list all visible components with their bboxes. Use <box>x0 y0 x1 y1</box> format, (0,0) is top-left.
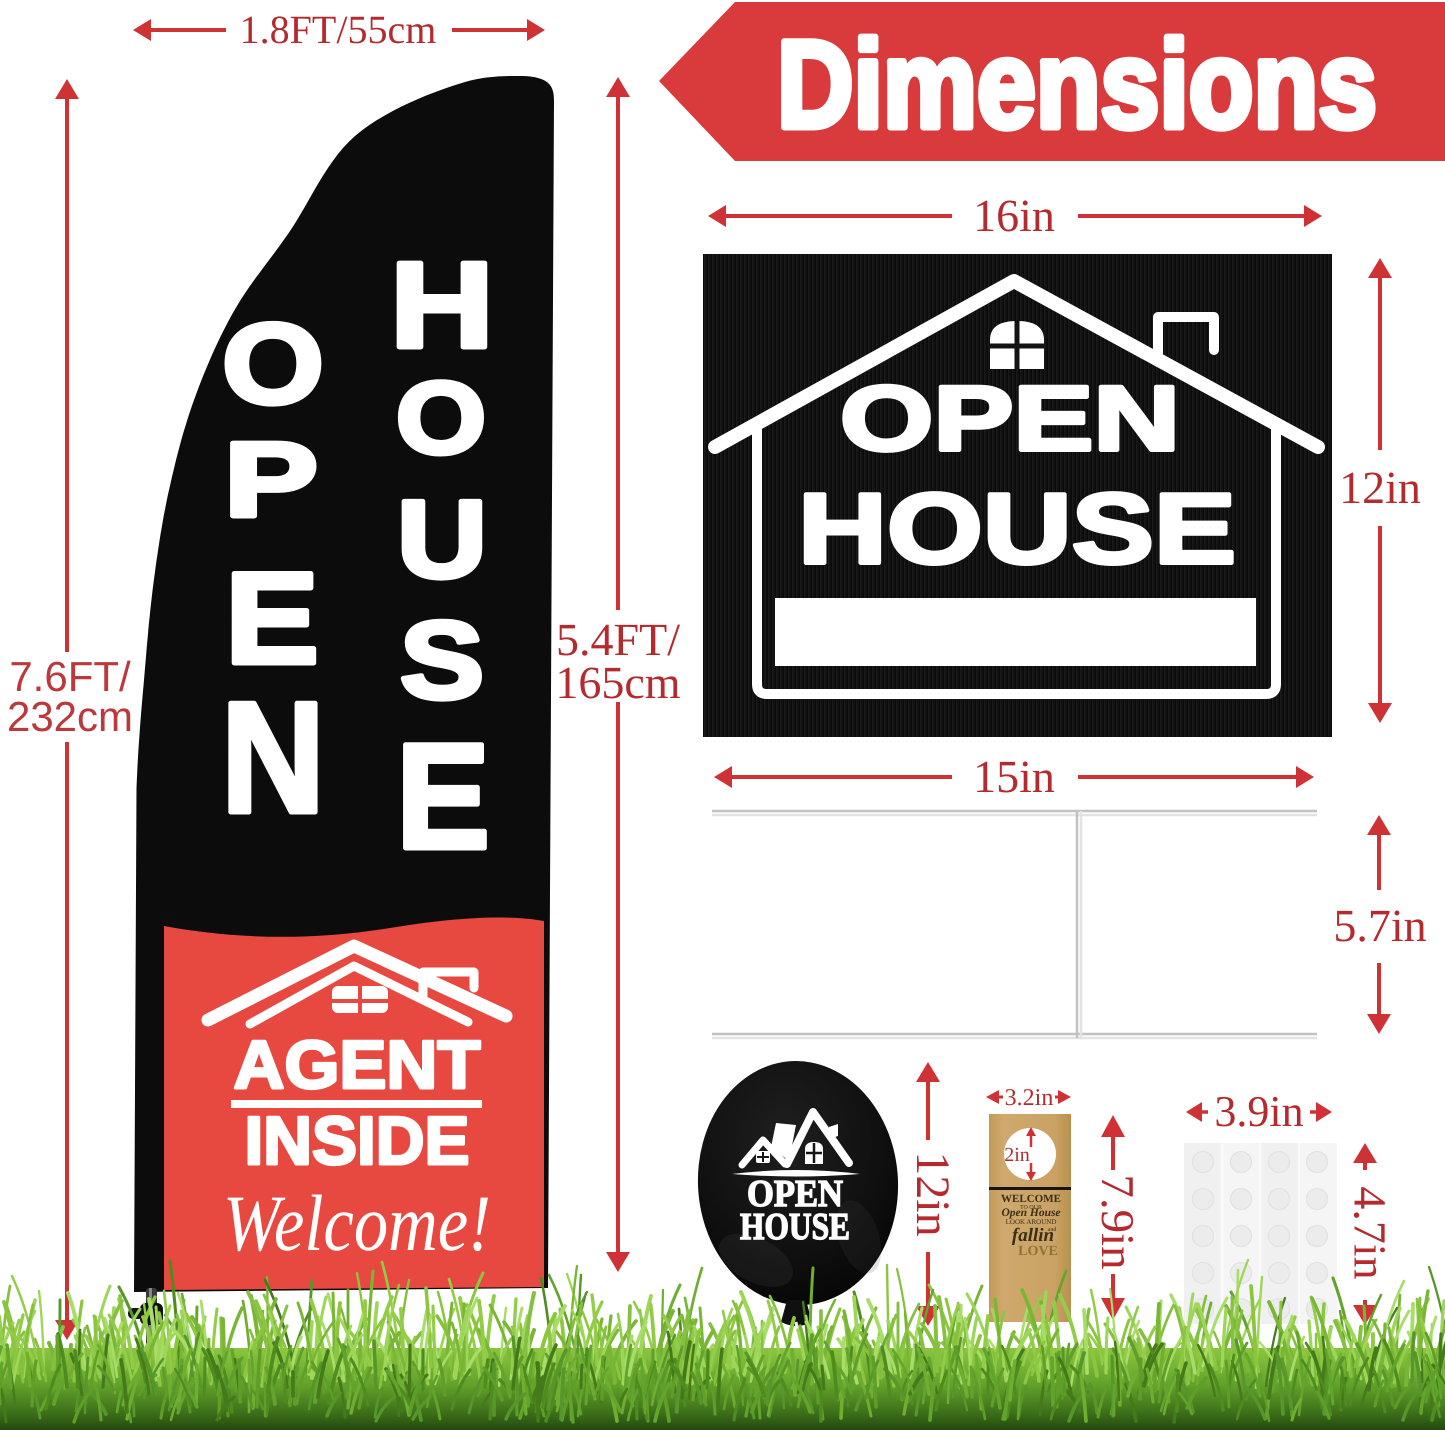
svg-text:AGENT: AGENT <box>234 1027 481 1103</box>
svg-text:7.9in: 7.9in <box>1091 1174 1143 1269</box>
svg-text:U: U <box>397 478 487 601</box>
svg-text:2in: 2in <box>1004 1144 1030 1166</box>
svg-text:Welcome!: Welcome! <box>223 1180 491 1268</box>
svg-text:12in: 12in <box>1339 462 1421 513</box>
svg-text:LOVE: LOVE <box>1018 1244 1058 1259</box>
svg-text:O: O <box>222 301 324 428</box>
svg-text:N: N <box>221 670 325 846</box>
svg-text:5.7in: 5.7in <box>1333 900 1426 951</box>
svg-text:HOUSE: HOUSE <box>798 473 1236 585</box>
svg-text:Dimensions: Dimensions <box>777 16 1377 154</box>
svg-text:165cm: 165cm <box>555 657 680 708</box>
svg-text:H: H <box>390 237 494 373</box>
svg-text:P: P <box>224 421 318 539</box>
svg-text:O: O <box>396 361 486 475</box>
svg-text:16in: 16in <box>973 190 1055 241</box>
svg-text:232cm: 232cm <box>7 693 133 740</box>
svg-text:12in: 12in <box>906 1151 959 1236</box>
svg-text:15in: 15in <box>973 751 1055 802</box>
svg-text:INSIDE: INSIDE <box>245 1103 470 1179</box>
svg-text:WELCOME: WELCOME <box>1001 1193 1061 1205</box>
svg-text:S: S <box>400 599 484 722</box>
svg-text:E: E <box>396 712 490 880</box>
svg-text:OPEN: OPEN <box>840 368 1180 470</box>
svg-text:4.7in: 4.7in <box>1344 1186 1395 1279</box>
svg-text:1.8FT/55cm: 1.8FT/55cm <box>240 7 437 52</box>
svg-text:3.2in: 3.2in <box>1005 1085 1054 1111</box>
svg-text:HOUSE: HOUSE <box>740 1206 850 1248</box>
svg-text:3.9in: 3.9in <box>1214 1087 1303 1136</box>
svg-text:fallin: fallin <box>1012 1225 1054 1246</box>
